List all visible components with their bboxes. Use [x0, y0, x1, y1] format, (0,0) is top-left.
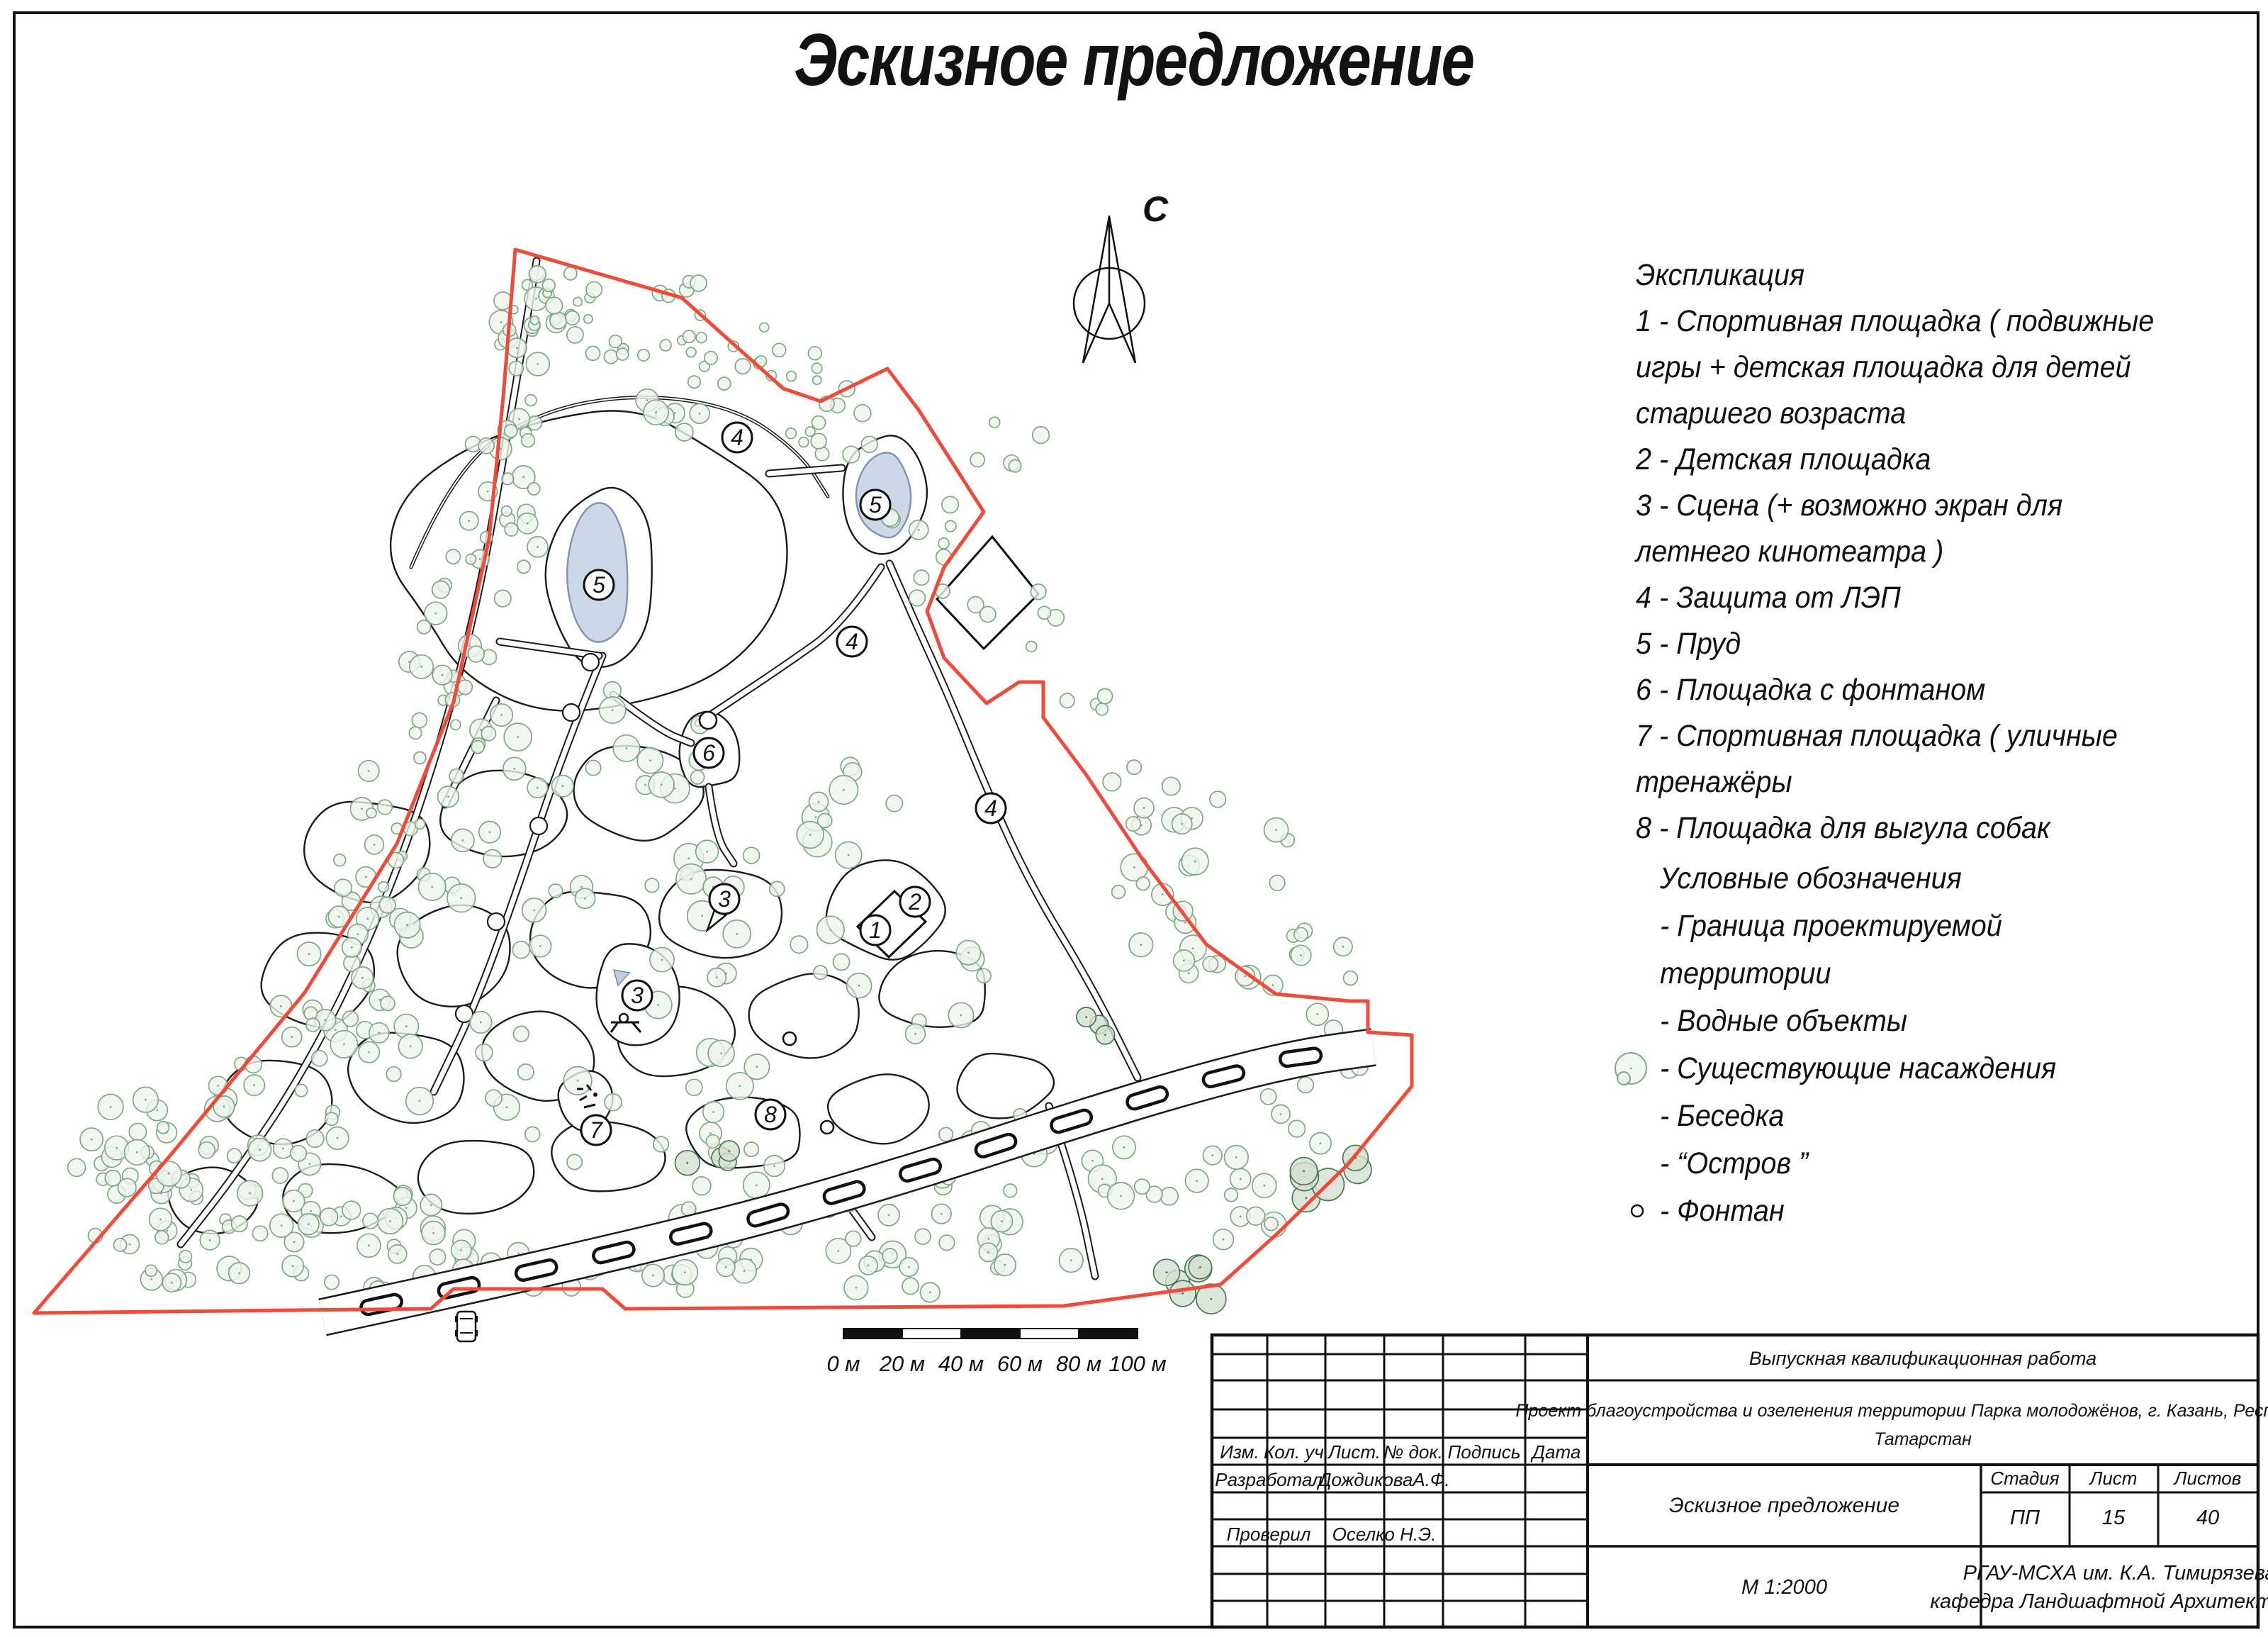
tree [129, 1123, 146, 1140]
tree-center-dot [699, 413, 701, 415]
tree [458, 680, 472, 694]
park-path-cell [749, 973, 859, 1058]
tree-center-dot [848, 854, 850, 856]
area-balloon-number: 6 [702, 740, 715, 766]
legend-explication-line: тренажёры [1636, 759, 2154, 805]
legend-explication-line: Экспликация [1636, 252, 2154, 298]
tree [501, 506, 512, 517]
tree-center-dot [561, 785, 563, 787]
tree-center-dot [361, 977, 364, 979]
tree-center-dot [967, 951, 970, 954]
tree-center-dot [292, 1265, 294, 1267]
titleblock-text: Кол. уч. [1264, 1441, 1329, 1463]
tree-center-dot [500, 714, 503, 716]
tree [812, 416, 826, 430]
tree [155, 1231, 169, 1244]
tree [1038, 606, 1050, 619]
tree-center-dot [309, 1163, 311, 1166]
tree-center-dot [1166, 1271, 1168, 1273]
tree [179, 1251, 191, 1263]
tree-center-dot [1199, 1266, 1201, 1268]
tree-center-dot [368, 1244, 370, 1246]
tree [386, 1067, 401, 1082]
scale-bar-segment [961, 1329, 1020, 1339]
titleblock-text: Лист. [1327, 1441, 1381, 1463]
tree-center-dot [535, 298, 537, 300]
tree [505, 425, 517, 437]
tree [505, 523, 517, 536]
tree [706, 1135, 719, 1149]
tree [528, 483, 540, 495]
tree-center-dot [116, 1147, 118, 1149]
tree-center-dot [646, 399, 649, 401]
tree [446, 549, 460, 564]
tree-center-dot [324, 1019, 326, 1021]
tree [584, 315, 593, 323]
tree-center-dot [280, 1005, 282, 1007]
tree-center-dot [1306, 1197, 1308, 1199]
tree-center-dot [537, 546, 539, 548]
titleblock-text: ДождиковаА.Ф. [1316, 1469, 1450, 1490]
path-node [530, 817, 547, 834]
area-balloon-number: 4 [731, 425, 743, 450]
tree-center-dot [442, 674, 444, 676]
scale-bar-label: 20 м [879, 1351, 925, 1376]
tree [1210, 791, 1226, 808]
legend-explication-line: 6 - Площадка с фонтаном [1636, 667, 2154, 713]
tree [586, 346, 600, 360]
tree [1060, 693, 1074, 708]
tree-center-dot [1004, 1264, 1006, 1266]
tree [1004, 1184, 1017, 1197]
tree [198, 1142, 215, 1158]
tree-center-dot [368, 770, 370, 772]
tree-center-dot [171, 1282, 173, 1284]
titleblock-text: Дата [1530, 1441, 1581, 1463]
tree [585, 760, 600, 775]
tree [1126, 817, 1141, 832]
tree [291, 1146, 306, 1161]
tree-center-dot [293, 1241, 296, 1244]
tree [466, 554, 476, 564]
scale-bar-segment [843, 1329, 902, 1339]
legend-symbols-line: территории [1660, 950, 2056, 998]
tree [814, 966, 827, 979]
tree-center-dot [522, 476, 524, 479]
tree-center-dot [1143, 807, 1145, 809]
tree-center-dot [914, 1033, 916, 1035]
tree [1135, 1179, 1150, 1194]
tree-center-dot [1140, 944, 1142, 946]
page-title: Эскизное предложение [0, 18, 2268, 103]
fountain-circle [783, 1032, 796, 1045]
titleblock-text: Проверил [1227, 1524, 1311, 1545]
tree-center-dot [1085, 1016, 1087, 1018]
legend-symbols-line: - Водные объекты [1660, 998, 2056, 1045]
tree-center-dot [1162, 893, 1164, 895]
tree [509, 362, 523, 376]
tree-center-dot [238, 1272, 240, 1274]
legend-explication-line: 5 - Пруд [1636, 621, 2154, 667]
page-title-text: Эскизное предложение [794, 18, 1473, 103]
tree-center-dot [190, 1189, 192, 1191]
tree-center-dot [661, 783, 663, 786]
tree [977, 968, 991, 983]
north-label: С [1143, 189, 1169, 229]
tree [660, 340, 671, 351]
area-balloon-number: 5 [593, 572, 605, 598]
titleblock-text: кафедра Ландшафтной Архитектуры [1930, 1590, 2268, 1613]
titleblock-text: Татарстан [1874, 1429, 1972, 1449]
tree [342, 1201, 361, 1219]
drawing-sheet: 455464321378С0 м20 м40 м60 м80 м100 мИзм… [0, 0, 2268, 1637]
area-balloon-number: 5 [869, 492, 882, 518]
tree-center-dot [690, 878, 692, 880]
fountain-circle [700, 712, 717, 729]
legend-symbols-line: - Беседка [1660, 1093, 2056, 1140]
legend-explication-line: 4 - Защита от ЛЭП [1636, 575, 2154, 621]
tree-center-dot [644, 784, 646, 786]
tree [843, 446, 860, 463]
titleblock-text: Эскизное предложение [1669, 1494, 1899, 1517]
fountain-circle [821, 1121, 833, 1134]
tree-center-dot [773, 1165, 775, 1167]
legend-explication-line: 2 - Детская площадка [1636, 437, 2154, 483]
tree [379, 897, 395, 913]
tree [430, 1249, 445, 1265]
tree-center-dot [987, 1251, 989, 1253]
tree [335, 879, 352, 896]
tree-center-dot [652, 1275, 654, 1277]
tree-center-dot [720, 1052, 722, 1054]
tree-center-dot [517, 1253, 520, 1255]
workout-equipment-icon [593, 1093, 597, 1097]
tree-center-dot [410, 1045, 412, 1047]
tree [645, 878, 659, 893]
tree [813, 376, 821, 384]
titleblock-text: 15 [2102, 1507, 2126, 1529]
tree [743, 847, 760, 864]
tree-center-dot [1104, 1034, 1106, 1036]
scale-bar-label: 100 м [1108, 1351, 1167, 1376]
tree [378, 882, 389, 893]
tree [1160, 1188, 1178, 1205]
tree-center-dot [406, 924, 408, 926]
tree-center-dot [110, 1106, 112, 1108]
tree-center-dot [1342, 946, 1344, 948]
legend-explication-line: старшего возраста [1636, 391, 2154, 437]
tree [564, 267, 577, 280]
tree-center-dot [888, 1214, 890, 1217]
tree [573, 298, 582, 306]
scale-bar-segment [1020, 1329, 1079, 1339]
tree-center-dot [253, 1084, 255, 1086]
tree [806, 427, 815, 436]
tree-center-dot [706, 851, 708, 853]
tree-center-dot [1240, 1178, 1242, 1180]
tree-center-dot [1184, 922, 1186, 924]
tree [675, 423, 693, 441]
tree-center-dot [626, 747, 628, 749]
car-icon [455, 1330, 457, 1336]
tree-center-dot [479, 558, 481, 560]
tree [833, 954, 850, 970]
tree [451, 720, 461, 730]
tree-center-dot [337, 1137, 339, 1139]
tree [690, 771, 704, 784]
area-balloon-number: 7 [590, 1117, 603, 1143]
tree [617, 348, 629, 360]
tree [886, 795, 902, 812]
tree-center-dot [712, 1111, 714, 1113]
area-balloon-number: 3 [631, 983, 644, 1008]
tree-center-dot [396, 1253, 398, 1256]
tree [1225, 1188, 1238, 1202]
tree-center-dot [1300, 954, 1302, 956]
tree-center-dot [405, 1207, 408, 1209]
tree [760, 323, 769, 332]
tree [483, 849, 502, 868]
tree-center-dot [739, 1085, 741, 1087]
tree-center-dot [701, 915, 703, 917]
scale-bar-label: 60 м [997, 1351, 1043, 1376]
tree [1344, 971, 1358, 985]
tree [412, 713, 427, 728]
tree-center-dot [577, 1080, 579, 1082]
tree [393, 1188, 412, 1206]
tree-center-dot [684, 1271, 686, 1273]
tree [1261, 1089, 1276, 1105]
tree [513, 1026, 529, 1041]
legend-explication-line: 1 - Спортивная площадка ( подвижные [1636, 298, 2154, 345]
tree-center-dot [159, 1219, 162, 1221]
tree [325, 1112, 338, 1125]
tree [495, 590, 511, 606]
scale-bar-segment [902, 1329, 961, 1339]
tree-center-dot [365, 876, 367, 878]
tree-center-dot [941, 1213, 943, 1215]
tree-center-dot [1001, 1220, 1003, 1222]
scale-bar-label: 0 м [826, 1351, 860, 1376]
tree [566, 311, 580, 325]
tree-center-dot [430, 1204, 432, 1206]
tree [272, 1168, 288, 1183]
tree-center-dot [1211, 1154, 1213, 1156]
tree-center-dot [480, 1022, 482, 1024]
tree [157, 1122, 169, 1134]
park-path-cell [957, 1054, 1053, 1118]
path-node [582, 654, 599, 671]
car-icon [476, 1316, 478, 1322]
tree-center-dot [868, 1265, 870, 1267]
tree-center-dot [987, 1238, 989, 1240]
tree-center-dot [419, 1100, 421, 1102]
tree-center-dot [145, 1099, 147, 1101]
tree-center-dot [374, 844, 376, 846]
legend-explication: Экспликация1 - Спортивная площадка ( под… [1636, 252, 2199, 851]
tree-center-dot [506, 1106, 508, 1108]
legend-explication-line: игры + детская площадка для детей [1636, 345, 2154, 391]
tree-center-dot [91, 1139, 93, 1141]
tree [468, 646, 484, 662]
tree-center-dot [908, 1266, 910, 1268]
titleblock-text: Выпускная квалификационная работа [1749, 1348, 2096, 1369]
tree-center-dot [1123, 1146, 1125, 1149]
tree-center-dot [310, 1210, 312, 1212]
tree-center-dot [527, 523, 529, 525]
tree-center-dot [1120, 1195, 1122, 1197]
tree-center-dot [357, 933, 359, 935]
tree-center-dot [308, 953, 310, 955]
tree-center-dot [756, 1066, 758, 1068]
tree [113, 1239, 126, 1251]
tree-center-dot [1316, 1013, 1318, 1015]
tree [605, 1094, 622, 1111]
path-node [563, 704, 580, 721]
tree-center-dot [728, 1150, 730, 1152]
tree-center-dot [432, 1232, 434, 1234]
tree [686, 1079, 702, 1095]
car-icon [457, 1312, 476, 1341]
tree-center-dot [1263, 1185, 1265, 1187]
scale-bar-label: 40 м [938, 1351, 984, 1376]
tree [773, 343, 786, 357]
tree [902, 1278, 919, 1294]
tree [381, 996, 395, 1010]
titleblock-text: Листов [2173, 1468, 2242, 1489]
tree [696, 333, 707, 343]
car-icon [455, 1316, 457, 1322]
tree-center-dot [460, 897, 462, 899]
tree [854, 405, 871, 422]
tree [1289, 1120, 1306, 1137]
tree [970, 453, 984, 467]
tree-center-dot [249, 1192, 251, 1195]
tree [846, 1231, 861, 1246]
tree-center-dot [420, 666, 422, 668]
tree [306, 1018, 320, 1032]
tree [502, 473, 514, 485]
titleblock-text: Лист [2089, 1468, 2138, 1489]
tree [1112, 885, 1125, 899]
tree-center-dot [1280, 1113, 1282, 1115]
tree-center-dot [725, 1266, 727, 1268]
tree [485, 1090, 502, 1106]
tree [945, 520, 956, 531]
tree [550, 313, 566, 329]
tree-center-dot [1181, 823, 1183, 825]
tree-center-dot [1181, 1292, 1184, 1295]
tree-center-dot [129, 1244, 131, 1246]
tree [909, 590, 926, 606]
tree [653, 1136, 669, 1152]
tree-center-dot [655, 411, 657, 413]
tree [939, 1235, 955, 1251]
area-balloon-number: 4 [846, 629, 858, 654]
tree-center-dot [918, 529, 920, 531]
tree-center-dot [1275, 829, 1277, 831]
tree-center-dot [1235, 1156, 1237, 1158]
tree [232, 1216, 247, 1231]
titleblock-text: Оселко Н.Э. [1332, 1524, 1437, 1545]
park-path-cell [828, 1074, 928, 1144]
tree-center-dot [136, 1151, 138, 1153]
legend-symbols-line: - Существующие насаждения [1660, 1045, 2056, 1093]
tree-center-dot [843, 789, 845, 791]
tree-center-dot [462, 839, 464, 842]
tree-center-dot [518, 418, 520, 420]
tree [471, 741, 484, 754]
tree [312, 1051, 327, 1066]
tree-center-dot [434, 613, 437, 615]
tree-center-dot [1070, 1259, 1072, 1261]
tree [770, 881, 785, 896]
tree-center-dot [1244, 976, 1246, 978]
tree [1009, 460, 1021, 472]
tree-center-dot [460, 1249, 462, 1251]
tree-center-dot [291, 1036, 293, 1038]
tree [415, 819, 425, 829]
tree [939, 1127, 953, 1141]
tree [744, 1142, 758, 1156]
tree [638, 350, 649, 361]
tree-center-dot [657, 1004, 659, 1006]
legend-symbols-line: - Фонтан [1660, 1188, 2056, 1235]
area-balloon-number: 3 [718, 886, 731, 912]
tree-center-dot [736, 933, 738, 935]
car-icon [476, 1330, 478, 1336]
tree [787, 371, 797, 381]
tree-center-dot [156, 1110, 158, 1112]
tree-center-dot [687, 857, 690, 859]
tree-center-dot [469, 645, 471, 647]
tree [692, 1177, 711, 1195]
tree [549, 884, 562, 898]
tree [228, 1149, 242, 1163]
tree-center-dot [1223, 1239, 1225, 1241]
tree [343, 1011, 359, 1027]
tree-center-dot [716, 976, 718, 978]
tree-center-dot [1133, 866, 1135, 868]
tree [518, 1064, 534, 1080]
tree-center-dot [513, 768, 515, 770]
tree-center-dot [818, 801, 820, 803]
tree-center-dot [1194, 861, 1196, 863]
tree-center-dot [743, 1270, 746, 1272]
tree-center-dot [649, 759, 651, 761]
tree-center-dot [1320, 1142, 1322, 1144]
tree-center-dot [1192, 947, 1194, 949]
titleblock-text: ПП [2010, 1507, 2040, 1529]
tree [690, 275, 707, 291]
tree-center-dot [829, 929, 831, 931]
tree-center-dot [809, 834, 812, 836]
legend-tree-icon [1617, 1072, 1630, 1085]
tree [476, 1044, 493, 1061]
tree-center-dot [1101, 1178, 1104, 1180]
tree-center-dot [293, 1200, 295, 1202]
tree [145, 1265, 157, 1276]
tree-center-dot [223, 1105, 225, 1107]
tree-center-dot [308, 1223, 310, 1225]
tree [529, 266, 546, 283]
titleblock-text: Проект благоустройства и озеленения терр… [1515, 1401, 2268, 1421]
path-node [488, 913, 505, 930]
tree [567, 327, 583, 343]
tree [980, 606, 996, 622]
tree-center-dot [539, 945, 541, 947]
tree [295, 1084, 307, 1096]
